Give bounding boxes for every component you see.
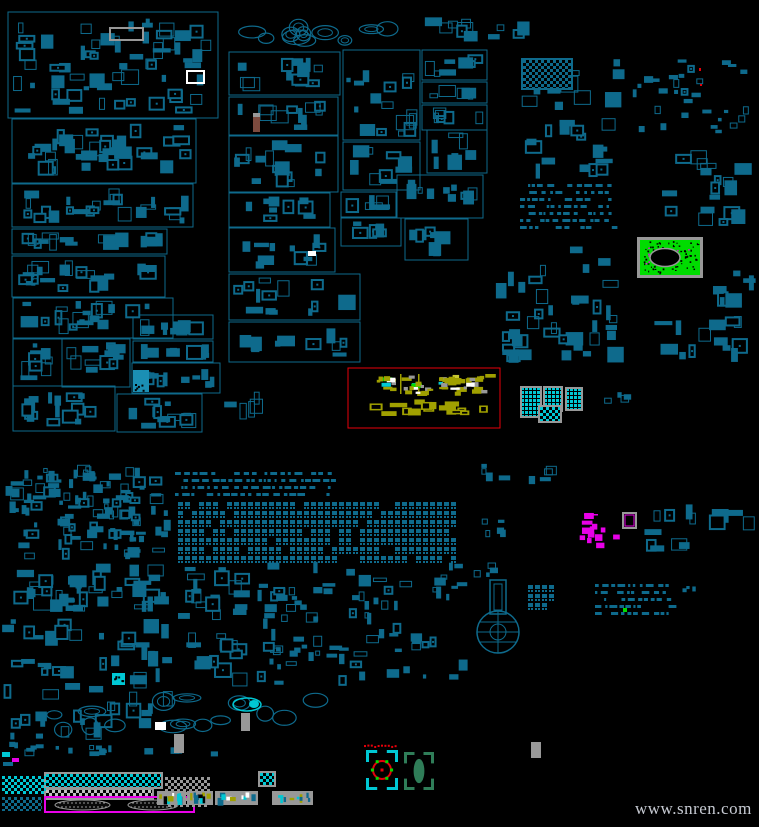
block-cluster [481,464,556,484]
cmat-3 [565,387,583,411]
block-cluster [240,328,348,356]
group-outline-box [422,105,487,130]
teal-hatch-mat [522,59,572,89]
block-cluster [409,226,450,255]
block-cluster [425,17,530,41]
brown-block-cap [253,113,260,117]
hatch-ellipse-1 [55,800,110,810]
block-cluster [350,145,415,185]
cyan-ellipse-small [249,700,259,708]
block-cluster [233,278,355,316]
magenta-inner-frame [625,515,634,526]
red-label [364,745,397,748]
block-cluster [178,502,456,563]
block-cluster [432,133,477,170]
block-cluster [13,564,169,612]
gray-bar-vertical [174,734,184,753]
block-cluster [234,140,325,187]
block-cluster [186,633,247,686]
brown-block [253,117,260,132]
block-cluster [520,184,617,229]
block-cluster [433,108,482,124]
block-cluster [430,85,476,99]
cad-viewport[interactable]: www.snren.com [0,0,759,827]
red-speck-1 [699,68,701,71]
block-cluster [682,586,695,592]
detail-bar-1 [157,791,186,805]
block-cluster [9,742,72,756]
block-cluster [14,19,211,114]
block-cluster [21,392,96,426]
block-cluster [67,342,126,372]
block-cluster [525,119,615,179]
cyan-chip-corner [2,752,10,757]
corner-checker-2 [2,797,42,811]
block-cluster [23,189,188,223]
block-cluster [224,392,262,419]
checker-mat-1 [45,773,162,788]
block-cluster [239,19,398,46]
gray-pill [241,713,250,731]
block-cluster [238,101,326,130]
block-cluster [257,562,468,686]
keyhole-symbol [477,580,519,653]
magenta-chip-corner [12,758,19,762]
block-cluster [22,232,163,250]
block-cluster [595,584,676,615]
block-cluster [352,221,387,239]
block-cluster [18,261,157,293]
block-cluster [713,271,756,308]
cmat-4 [539,406,561,422]
detail-bar-4 [272,791,313,805]
green-rug [637,237,703,278]
block-cluster [605,392,632,403]
block-cluster [346,70,417,137]
block-cluster [141,369,214,388]
green-dot [623,608,627,612]
gray-frame-box [110,28,143,40]
block-cluster [425,54,483,76]
white-speck [308,251,316,256]
block-cluster [662,151,752,197]
block-cluster [346,195,390,213]
block-cluster [633,59,749,133]
detail-bar-3 [215,791,258,806]
block-cluster [129,398,196,429]
block-cluster [644,504,754,551]
red-speck-2 [700,84,702,86]
corner-checker-1 [2,776,46,794]
block-cluster [175,472,336,496]
group-outline-box [229,193,330,227]
plant-pot-green [404,752,434,790]
bright-block-1 [133,370,149,392]
detail-bar-2 [187,791,213,805]
block-cluster [474,563,498,577]
block-cluster [141,344,209,360]
block-cluster [20,343,52,380]
block-cluster [28,124,191,176]
block-cluster [528,585,554,610]
checker-chip [259,772,275,786]
yellow-block-cluster [370,374,496,416]
block-cluster [178,567,250,620]
block-cluster [2,619,172,740]
block-cluster [246,197,316,222]
white-block [155,722,166,730]
block-cluster [89,745,218,756]
bright-block-2 [112,673,125,685]
teal-chip-corner [3,762,13,766]
block-cluster [21,301,155,334]
block-cluster [482,519,506,537]
cad-drawing-svg [0,0,759,827]
plant-pot-cyan [366,750,398,790]
block-cluster [6,465,171,559]
watermark-text: www.snren.com [635,799,752,819]
block-cluster [407,184,477,205]
block-cluster [47,693,328,737]
block-cluster [238,58,323,91]
gray-block-bottom [531,742,541,758]
magenta-door-cluster [580,513,620,548]
